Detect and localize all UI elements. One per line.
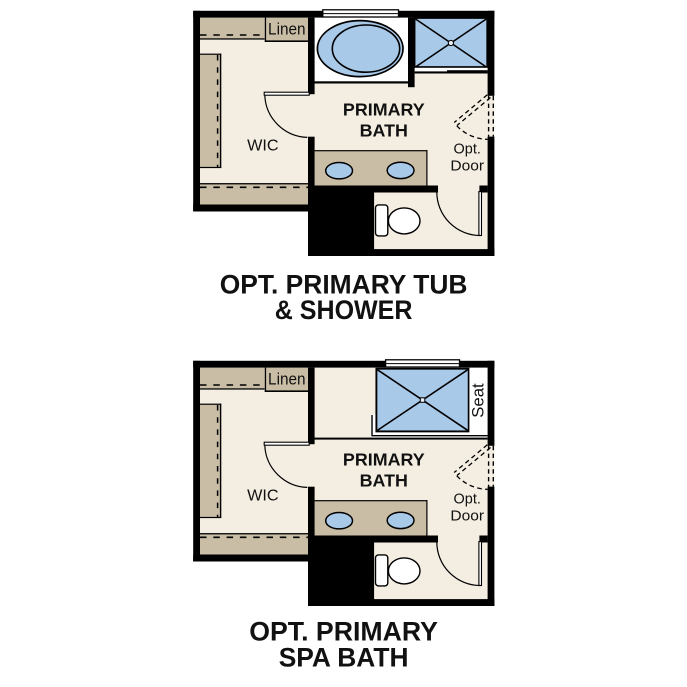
svg-text:WIC: WIC <box>247 137 279 154</box>
svg-text:PRIMARY: PRIMARY <box>343 100 425 120</box>
svg-text:Opt.: Opt. <box>454 141 481 157</box>
svg-text:Linen: Linen <box>268 20 306 39</box>
svg-text:BATH: BATH <box>360 470 408 490</box>
svg-text:WIC: WIC <box>247 487 279 504</box>
svg-text:BATH: BATH <box>360 120 408 140</box>
svg-text:SPA BATH: SPA BATH <box>279 641 409 672</box>
svg-text:Seat: Seat <box>468 383 487 418</box>
svg-text:Door: Door <box>450 508 484 524</box>
svg-text:& SHOWER: & SHOWER <box>275 294 413 325</box>
svg-text:Linen: Linen <box>268 370 306 389</box>
svg-text:Opt.: Opt. <box>454 491 481 507</box>
svg-text:PRIMARY: PRIMARY <box>343 450 425 470</box>
svg-text:Door: Door <box>450 158 484 174</box>
